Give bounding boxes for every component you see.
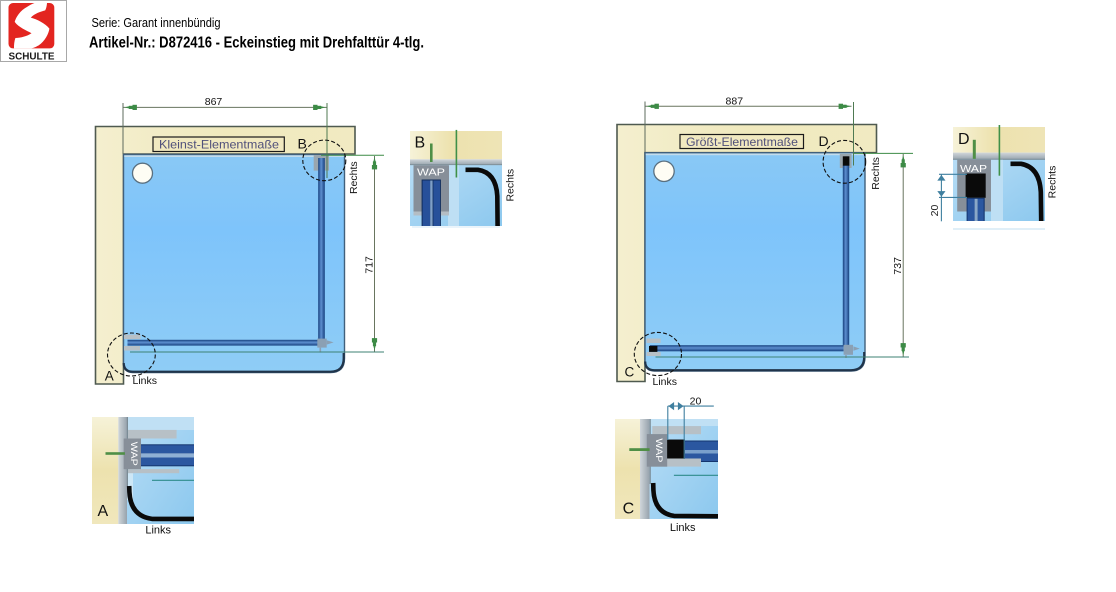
svg-text:Rechts: Rechts <box>870 157 882 190</box>
svg-text:C: C <box>623 501 635 518</box>
svg-text:20: 20 <box>690 395 702 407</box>
svg-text:WAP: WAP <box>128 442 139 466</box>
svg-text:Rechts: Rechts <box>348 161 360 194</box>
svg-text:737: 737 <box>892 257 904 275</box>
svg-text:20: 20 <box>929 205 941 217</box>
svg-text:B: B <box>415 135 426 152</box>
svg-text:A: A <box>98 503 109 520</box>
svg-text:D: D <box>958 131 970 148</box>
svg-text:D: D <box>819 133 829 149</box>
svg-text:Rechts: Rechts <box>1047 166 1059 199</box>
svg-text:Links: Links <box>670 522 696 534</box>
svg-text:C: C <box>625 365 635 380</box>
svg-text:Artikel-Nr.: D872416 - Eckeins: Artikel-Nr.: D872416 - Eckeinstieg mit D… <box>89 35 424 52</box>
svg-text:WAP: WAP <box>960 163 987 175</box>
svg-text:Rechts: Rechts <box>505 169 517 202</box>
svg-text:WAP: WAP <box>417 167 445 179</box>
svg-text:717: 717 <box>363 256 375 274</box>
svg-text:B: B <box>298 136 307 152</box>
svg-text:WAP: WAP <box>653 438 664 462</box>
svg-text:887: 887 <box>726 96 744 108</box>
svg-text:Links: Links <box>133 375 158 387</box>
svg-text:Links: Links <box>653 376 678 388</box>
svg-text:SCHULTE: SCHULTE <box>9 52 55 63</box>
svg-text:Serie: Garant innenbündig: Serie: Garant innenbündig <box>92 15 221 30</box>
svg-text:867: 867 <box>205 96 223 108</box>
svg-text:Kleinst-Elementmaße: Kleinst-Elementmaße <box>159 137 279 151</box>
svg-text:Links: Links <box>145 525 171 537</box>
svg-text:Größt-Elementmaße: Größt-Elementmaße <box>686 135 798 149</box>
svg-text:A: A <box>105 369 114 384</box>
